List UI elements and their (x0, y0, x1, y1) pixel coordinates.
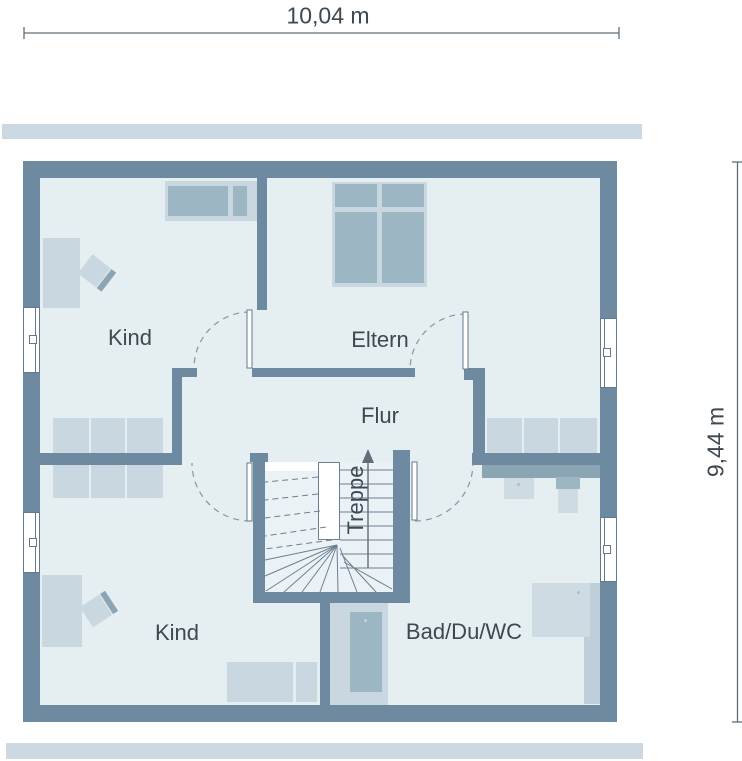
wall-bottom (23, 705, 617, 722)
wardrobe-panel (168, 186, 228, 216)
desk (43, 238, 80, 308)
wall-top (23, 161, 617, 178)
shower-drain (577, 591, 580, 594)
double-bed (332, 182, 427, 287)
dresser (227, 662, 293, 702)
dimension-height-line (732, 162, 742, 722)
divider (89, 465, 91, 498)
vanity-counter (482, 465, 600, 478)
stair-wall-right (393, 450, 410, 603)
dressing-sideboard (487, 418, 597, 453)
sideboard (53, 465, 163, 498)
window-knob (603, 348, 611, 357)
stair-landing (265, 462, 318, 471)
wall-left (23, 161, 40, 722)
wall-kind-kind (40, 453, 182, 465)
room-label-eltern: Eltern (351, 327, 408, 353)
stair-wall-bottom (253, 592, 410, 603)
bathtub-drain (364, 619, 367, 622)
mattress (335, 212, 377, 283)
window-knob (603, 545, 611, 554)
shower (532, 583, 590, 637)
window (600, 318, 617, 388)
room-label-bad: Bad/Du/WC (406, 619, 522, 645)
floor-plan: Kind Eltern Flur Treppe Kind Bad/Du/WC 1… (0, 0, 742, 761)
divider (125, 418, 127, 453)
dimension-width-label: 10,04 m (286, 3, 369, 30)
window (600, 517, 617, 582)
wall-kind-flur (172, 368, 182, 465)
window-knob (29, 538, 37, 547)
toilet-tank (556, 477, 580, 489)
pillow (335, 184, 377, 207)
wall-kind-bad (320, 603, 330, 705)
sink (504, 478, 534, 499)
mattress (382, 212, 424, 283)
room-label-treppe: Treppe (343, 466, 369, 535)
wall-kind-eltern (257, 178, 267, 310)
pillow (382, 184, 424, 207)
divider (125, 465, 127, 498)
divider (522, 418, 524, 453)
bathtub (330, 598, 388, 705)
bottom-band (6, 743, 643, 759)
window-knob (29, 335, 37, 344)
room-label-flur: Flur (361, 403, 399, 429)
toilet (558, 489, 578, 513)
bed (42, 575, 82, 647)
top-band (2, 124, 642, 139)
cabinet (296, 662, 317, 702)
window (23, 307, 40, 373)
bathtub-basin (350, 612, 382, 692)
room-label-kind-bottom: Kind (155, 620, 199, 646)
wall-bad-top (472, 453, 600, 465)
stair-wall-left (253, 453, 265, 603)
wardrobe-panel (233, 186, 247, 216)
room-label-kind-top: Kind (108, 325, 152, 351)
sink-drain (517, 483, 520, 486)
sideboard (53, 418, 163, 453)
wall-right (600, 161, 617, 722)
wall-stub-v (473, 368, 485, 465)
wall-eltern-flur (252, 368, 415, 377)
divider (89, 418, 91, 453)
stair-void (318, 462, 340, 540)
divider (558, 418, 560, 453)
window (23, 512, 40, 573)
dimension-height-label: 9,44 m (703, 407, 730, 477)
